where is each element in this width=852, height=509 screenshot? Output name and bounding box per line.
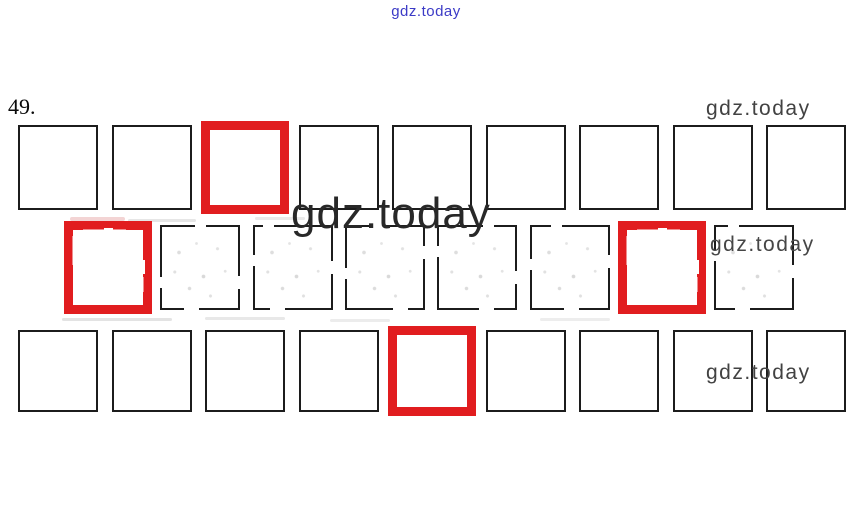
answer-box xyxy=(18,330,98,412)
whiteout-overlay xyxy=(689,277,698,292)
answer-box xyxy=(437,225,517,310)
border-gap xyxy=(437,246,442,257)
answer-box xyxy=(253,225,333,310)
answer-box xyxy=(766,330,846,412)
answer-box-highlighted xyxy=(201,121,289,214)
border-gap xyxy=(483,225,494,230)
border-gap xyxy=(789,265,794,278)
border-gap xyxy=(373,225,384,230)
border-gap xyxy=(714,250,719,261)
border-gap xyxy=(512,271,517,284)
worksheet-page: gdz.today 49. gdz.today gdz.today gdz.to… xyxy=(0,0,852,509)
answer-box xyxy=(345,225,425,310)
answer-box xyxy=(205,330,285,412)
border-gap xyxy=(270,305,285,310)
erasure-smudge xyxy=(255,217,305,220)
answer-box-highlighted xyxy=(388,326,476,416)
answer-row-bottom xyxy=(18,330,848,412)
erasure-smudge xyxy=(540,318,610,321)
answer-box xyxy=(160,225,240,310)
border-gap xyxy=(393,305,408,310)
answer-box xyxy=(766,125,846,210)
watermark-link-top[interactable]: gdz.today xyxy=(0,3,852,20)
erasure-smudge xyxy=(62,318,172,321)
answer-box xyxy=(486,330,566,412)
border-gap xyxy=(104,228,113,239)
border-gap xyxy=(195,225,206,230)
answer-box-highlighted xyxy=(64,221,152,314)
border-gap xyxy=(253,255,258,266)
border-gap xyxy=(235,276,240,289)
answer-box xyxy=(299,330,379,412)
border-gap xyxy=(160,277,165,288)
answer-box xyxy=(673,125,753,210)
exercise-number: 49. xyxy=(8,94,36,120)
answer-box xyxy=(392,125,472,210)
answer-box xyxy=(673,330,753,412)
answer-box xyxy=(714,225,794,310)
erasure-smudge xyxy=(205,317,285,320)
border-gap xyxy=(345,268,350,279)
answer-row-top xyxy=(18,125,848,210)
border-gap xyxy=(184,305,199,310)
border-gap xyxy=(693,260,699,274)
answer-box xyxy=(579,125,659,210)
border-gap xyxy=(479,305,494,310)
answer-box xyxy=(112,330,192,412)
answer-box xyxy=(112,125,192,210)
watermark-top-right: gdz.today xyxy=(706,97,811,121)
border-gap xyxy=(530,259,535,270)
whiteout-overlay xyxy=(135,277,144,292)
erasure-smudge xyxy=(330,319,390,322)
border-gap xyxy=(735,305,750,310)
answer-box xyxy=(486,125,566,210)
answer-box xyxy=(18,125,98,210)
border-gap xyxy=(551,225,562,230)
border-gap xyxy=(728,225,739,230)
border-gap xyxy=(328,261,333,274)
answer-box xyxy=(299,125,379,210)
whiteout-overlay xyxy=(626,236,635,265)
answer-box-highlighted xyxy=(618,221,706,314)
border-gap xyxy=(658,228,667,239)
border-gap xyxy=(564,305,579,310)
border-gap xyxy=(420,246,425,259)
answer-box xyxy=(579,330,659,412)
border-gap xyxy=(605,255,610,268)
whiteout-overlay xyxy=(72,236,81,265)
border-gap xyxy=(263,225,274,230)
border-gap xyxy=(139,260,145,274)
answer-row-middle xyxy=(68,225,828,310)
answer-box xyxy=(530,225,610,310)
